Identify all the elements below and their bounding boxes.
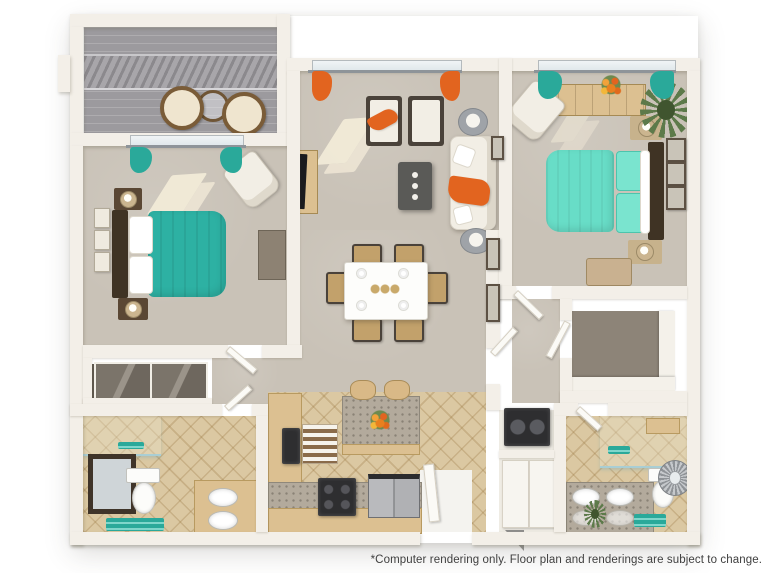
bathroom1-shower [83, 416, 161, 456]
kitchen-island-flowers [368, 410, 392, 432]
dining-centerpiece [370, 284, 400, 294]
disclaimer-text: *Computer rendering only. Floor plan and… [371, 554, 762, 566]
wall-closet2-south [560, 391, 687, 403]
bathroom1-sink-top [208, 488, 238, 507]
bathroom1-shower-deco [118, 442, 144, 449]
bathroom1-mirror [88, 454, 136, 514]
wall-bottom-left [70, 532, 420, 545]
bedroom2-wall-art-1 [666, 138, 686, 162]
dining-plate-2 [398, 268, 409, 279]
wall-patio-top [70, 14, 287, 27]
closet2-shelf-bottom [572, 377, 675, 391]
bedroom1-duvet [148, 211, 226, 297]
wall-living-hall-b [486, 384, 500, 410]
bedroom1-dresser [258, 230, 286, 280]
bedroom2-pillow-white [640, 150, 650, 234]
bedroom1-wall-art-1 [94, 208, 110, 228]
dining-plate-1 [356, 268, 367, 279]
bedroom2-duvet [546, 150, 614, 232]
bathroom1-toilet-tank [126, 468, 160, 483]
bedroom2-flowers [598, 74, 624, 98]
wall-bedroom1-south-b [262, 345, 302, 358]
kitchen-open-shelves [302, 424, 338, 464]
wall-bedroom2-west [499, 58, 512, 299]
bedroom2-bench [586, 258, 632, 286]
wall-bathroom1-east [256, 416, 268, 532]
bedroom1-pillow-top [129, 216, 153, 254]
hall-closet-door-left [502, 460, 529, 528]
kitchen-wall-oven [282, 428, 300, 464]
bedroom1-wall-art-2 [94, 230, 110, 250]
bedroom1-headboard [112, 210, 128, 298]
kitchen-refrigerator [368, 474, 420, 518]
bathroom2-towels [634, 514, 666, 527]
patio-roof-slats [84, 54, 277, 90]
wall-bottom-right [472, 532, 700, 545]
floor-plan-rendering: *Computer rendering only. Floor plan and… [0, 0, 764, 573]
wall-bathroom1-north-b [252, 404, 268, 416]
bathroom1-toilet-bowl [132, 482, 156, 514]
dining-plate-3 [356, 300, 367, 311]
bathroom2-plant [584, 500, 606, 528]
hall-wall-art-lower [486, 284, 500, 322]
wall-right-outer [687, 71, 700, 545]
wall-bedroom2-south-b [552, 286, 687, 299]
dining-chair-bottom-left [352, 318, 382, 342]
closet1-mirror-door-right [150, 362, 208, 403]
kitchen-stool-left [350, 380, 376, 400]
washer-dryer [504, 408, 550, 446]
side-table-top [458, 108, 488, 136]
bedroom1-lamp-bottom [125, 301, 142, 318]
bathroom2-wall-cabinet [646, 418, 680, 434]
bathroom2-sink-right-reflection [606, 510, 634, 526]
hall-wall-art-mid [486, 238, 500, 270]
patio-chair-right [222, 92, 266, 136]
wall-patio-notch [58, 55, 70, 92]
bedroom2-headboard [648, 142, 664, 240]
dining-plate-4 [398, 300, 409, 311]
wall-closet2-west-a [560, 299, 572, 320]
wall-bedroom1-south-a [83, 345, 228, 358]
wall-bathroom2-north-b [608, 403, 687, 416]
bathroom1-sink-bottom [208, 511, 238, 530]
kitchen-range [318, 478, 356, 516]
patio-chair-left [160, 86, 204, 130]
hall-closet-door-right [529, 460, 556, 528]
wall-bathroom2-west [554, 416, 566, 532]
wall-bedroom1-living [287, 71, 300, 345]
bedroom2-lamp-bottom [636, 243, 654, 261]
bedroom1-wall-art-3 [94, 252, 110, 272]
hall-wall-art-upper [491, 136, 504, 160]
bathroom2-sink-right [606, 488, 634, 506]
kitchen-island-base [342, 444, 420, 455]
wall-patio-left [70, 27, 83, 133]
wall-bedroom2-south-a [499, 286, 516, 299]
bedroom1-pillow-bottom [129, 256, 153, 294]
bedroom2-wall-art-3 [666, 186, 686, 210]
bedroom2-wall-art-2 [666, 162, 686, 186]
wall-laundry-divider [499, 450, 554, 458]
dining-chair-bottom-right [394, 318, 424, 342]
closet1-mirror-door-left [94, 362, 152, 403]
wall-bathroom1-north-a [70, 404, 222, 416]
coffee-table [398, 162, 432, 210]
living-curtain-rod [308, 70, 462, 73]
living-armchair-right-cushion [412, 100, 440, 142]
coffee-table-candles [412, 172, 418, 178]
bedroom1-lamp-top [120, 191, 137, 208]
wall-bathroom2-north-a [554, 403, 578, 416]
bathroom1-towels [106, 518, 164, 531]
wall-left-outer [70, 146, 83, 545]
kitchen-stool-right [384, 380, 410, 400]
bathroom2-shower-deco [608, 446, 630, 454]
